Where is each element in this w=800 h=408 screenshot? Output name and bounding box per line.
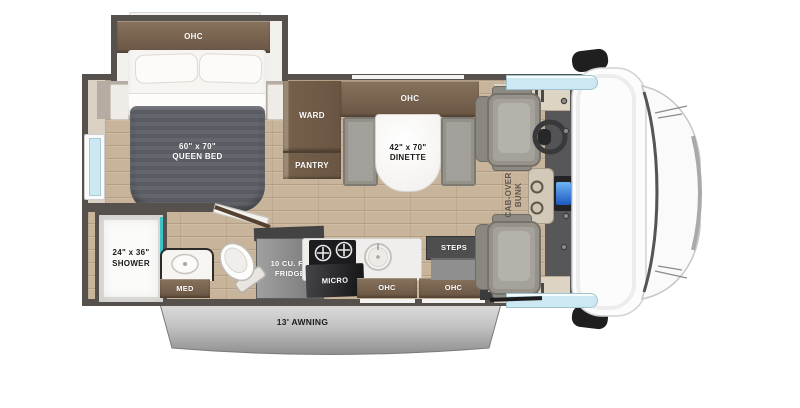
driver-door-vent-b	[541, 88, 544, 102]
entry-steps: STEPS	[426, 236, 482, 260]
kitchen-ohc-left-label: OHC	[378, 283, 396, 293]
dinette-name-label: DINETTE	[390, 153, 426, 163]
bed-size-label: 60" x 70"	[179, 142, 216, 152]
driver-seat-pad	[498, 103, 530, 153]
dinette-window-trim	[352, 75, 464, 79]
passenger-seat-pad	[498, 231, 530, 281]
fridge-line2-label: FRIDGE	[275, 269, 305, 279]
bedroom-ohc-cabinet: OHC	[117, 21, 270, 53]
pantry-cabinet: PANTRY	[283, 153, 341, 179]
dinette-table: 42" x 70" DINETTE	[375, 114, 441, 192]
entry-step-lower	[431, 258, 476, 280]
cabover-line1: CAB-OVER	[504, 172, 514, 217]
ward-label: WARD	[299, 111, 325, 121]
radio-unit	[554, 176, 573, 211]
bed-name-label: QUEEN BED	[172, 152, 222, 162]
pantry-label: PANTRY	[295, 161, 329, 171]
pillow-left	[135, 53, 199, 84]
cabover-bunk-label: CAB-OVER BUNK	[500, 158, 528, 232]
nightstand-left	[110, 84, 129, 120]
dinette-size-label: 42" x 70"	[390, 143, 427, 153]
shower-name-label: SHOWER	[112, 259, 150, 269]
bedroom-window-glass	[89, 138, 101, 196]
exterior-trim-left	[360, 299, 415, 303]
med-label: MED	[176, 284, 194, 294]
microwave: MICRO	[305, 263, 364, 298]
kitchen-ohc-right-label: OHC	[445, 283, 463, 293]
exterior-trim-right	[422, 299, 485, 303]
center-console	[528, 168, 554, 224]
pillow-right	[199, 53, 263, 84]
dinette-bench-right	[441, 117, 476, 186]
lav-counter	[160, 248, 214, 281]
dinette-ohc-label: OHC	[401, 94, 420, 104]
bedroom-window	[84, 134, 105, 200]
med-cabinet: MED	[160, 279, 210, 298]
shower-size-label: 24" x 36"	[113, 248, 150, 258]
shower: 24" x 36" SHOWER	[95, 211, 167, 306]
rv-floorplan: 13' AWNING OHC 60" x 70" QUEEN BED WARD …	[0, 0, 800, 408]
shower-label-block: 24" x 36" SHOWER	[99, 215, 163, 302]
micro-label: MICRO	[322, 275, 349, 286]
driver-door-window	[506, 75, 598, 90]
dinette-bench-left	[343, 117, 378, 186]
wardrobe-cabinet: WARD	[283, 81, 341, 153]
passenger-seat	[487, 221, 541, 295]
radio-screen	[556, 182, 571, 205]
steps-label: STEPS	[441, 243, 467, 253]
bedroom-ohc-label: OHC	[184, 32, 203, 42]
driver-seat	[487, 93, 541, 167]
queen-bed: 60" x 70" QUEEN BED	[130, 106, 265, 212]
awning-label: 13' AWNING	[230, 317, 375, 328]
dinette-ohc-cabinet: OHC	[341, 81, 479, 117]
kitchen-ohc-left: OHC	[357, 278, 417, 298]
cabover-line2: BUNK	[514, 183, 524, 207]
